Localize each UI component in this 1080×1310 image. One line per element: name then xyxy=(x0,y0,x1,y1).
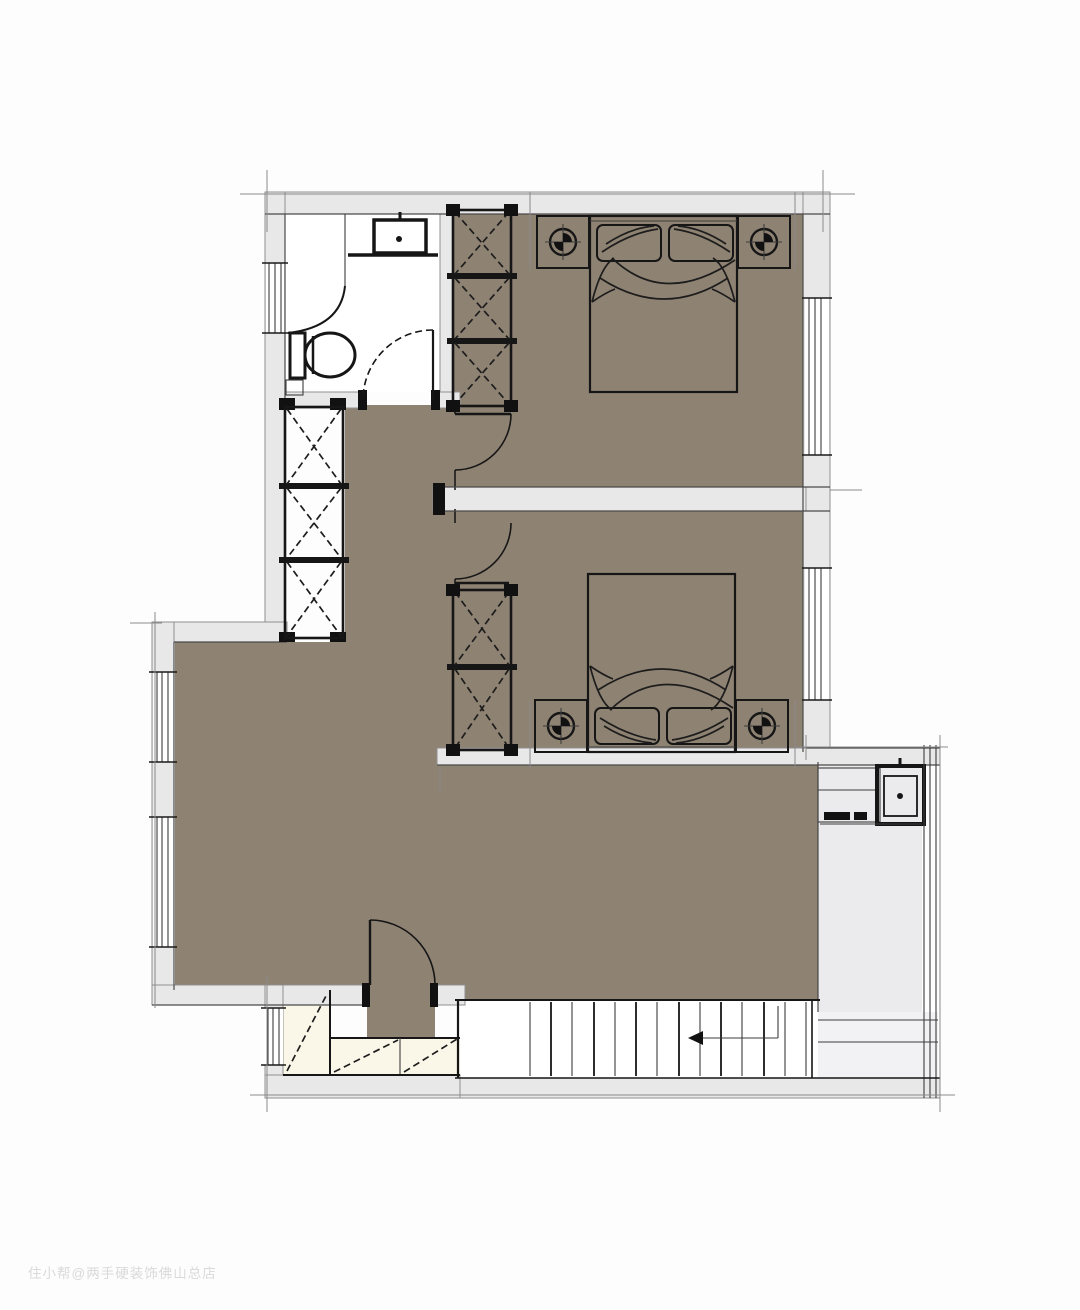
wall-top xyxy=(265,192,830,214)
bedroom-1-window xyxy=(802,298,832,455)
living-window-2 xyxy=(149,817,177,947)
wardrobe-hall xyxy=(279,407,349,638)
bedroom-2-window xyxy=(802,568,832,700)
storage-window xyxy=(261,1008,286,1065)
balcony-floor xyxy=(818,762,922,1015)
floor-plan-drawing xyxy=(0,0,1080,1310)
wall-bedroom-divider xyxy=(433,487,806,511)
wall-left-upper xyxy=(265,192,285,642)
watermark-text: 住小帮@两手硬装饰佛山总店 xyxy=(28,1262,217,1282)
bedroom-1-floor xyxy=(450,214,806,488)
wall-bathroom-bottom xyxy=(285,392,365,408)
wall-living-bottom-stub xyxy=(437,985,465,1005)
stair-landing-floor xyxy=(818,1012,938,1078)
living-floor-right xyxy=(455,752,820,1000)
wall-bathroom-right xyxy=(440,214,453,392)
floor-plan-page: 住小帮@两手硬装饰佛山总店 xyxy=(0,0,1080,1310)
hall-floor xyxy=(345,405,455,642)
wall-living-bottom-left xyxy=(152,985,367,1005)
doorway-floor xyxy=(367,985,435,1037)
living-window-1 xyxy=(149,672,177,762)
storage-cell-bottom xyxy=(330,1038,460,1075)
